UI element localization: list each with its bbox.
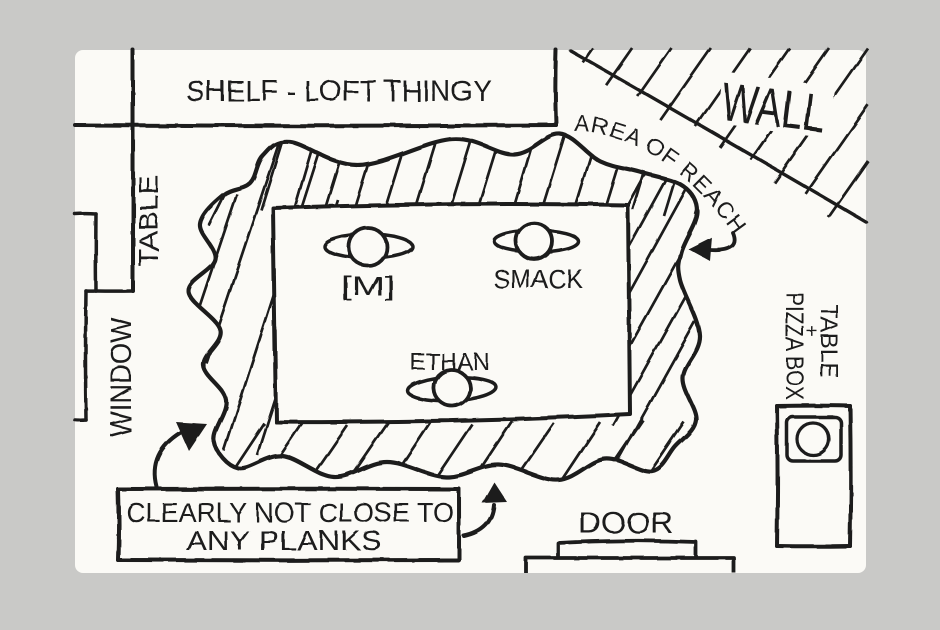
svg-text:TABLE: TABLE — [815, 304, 842, 378]
svg-text:SHELF - LOFT THINGY: SHELF - LOFT THINGY — [186, 75, 492, 108]
svg-text:PIZZA BOX: PIZZA BOX — [780, 292, 808, 400]
svg-text:WINDOW: WINDOW — [105, 316, 138, 437]
svg-text:DOOR: DOOR — [579, 507, 674, 540]
svg-text:WALL: WALL — [718, 72, 829, 144]
svg-text:TABLE: TABLE — [133, 175, 164, 267]
svg-text:SMACK: SMACK — [493, 264, 583, 294]
svg-text:[M]: [M] — [341, 271, 395, 301]
svg-text:CLEARLY NOT CLOSE TO: CLEARLY NOT CLOSE TO — [126, 497, 454, 528]
svg-text:ANY PLANKS: ANY PLANKS — [186, 525, 382, 556]
